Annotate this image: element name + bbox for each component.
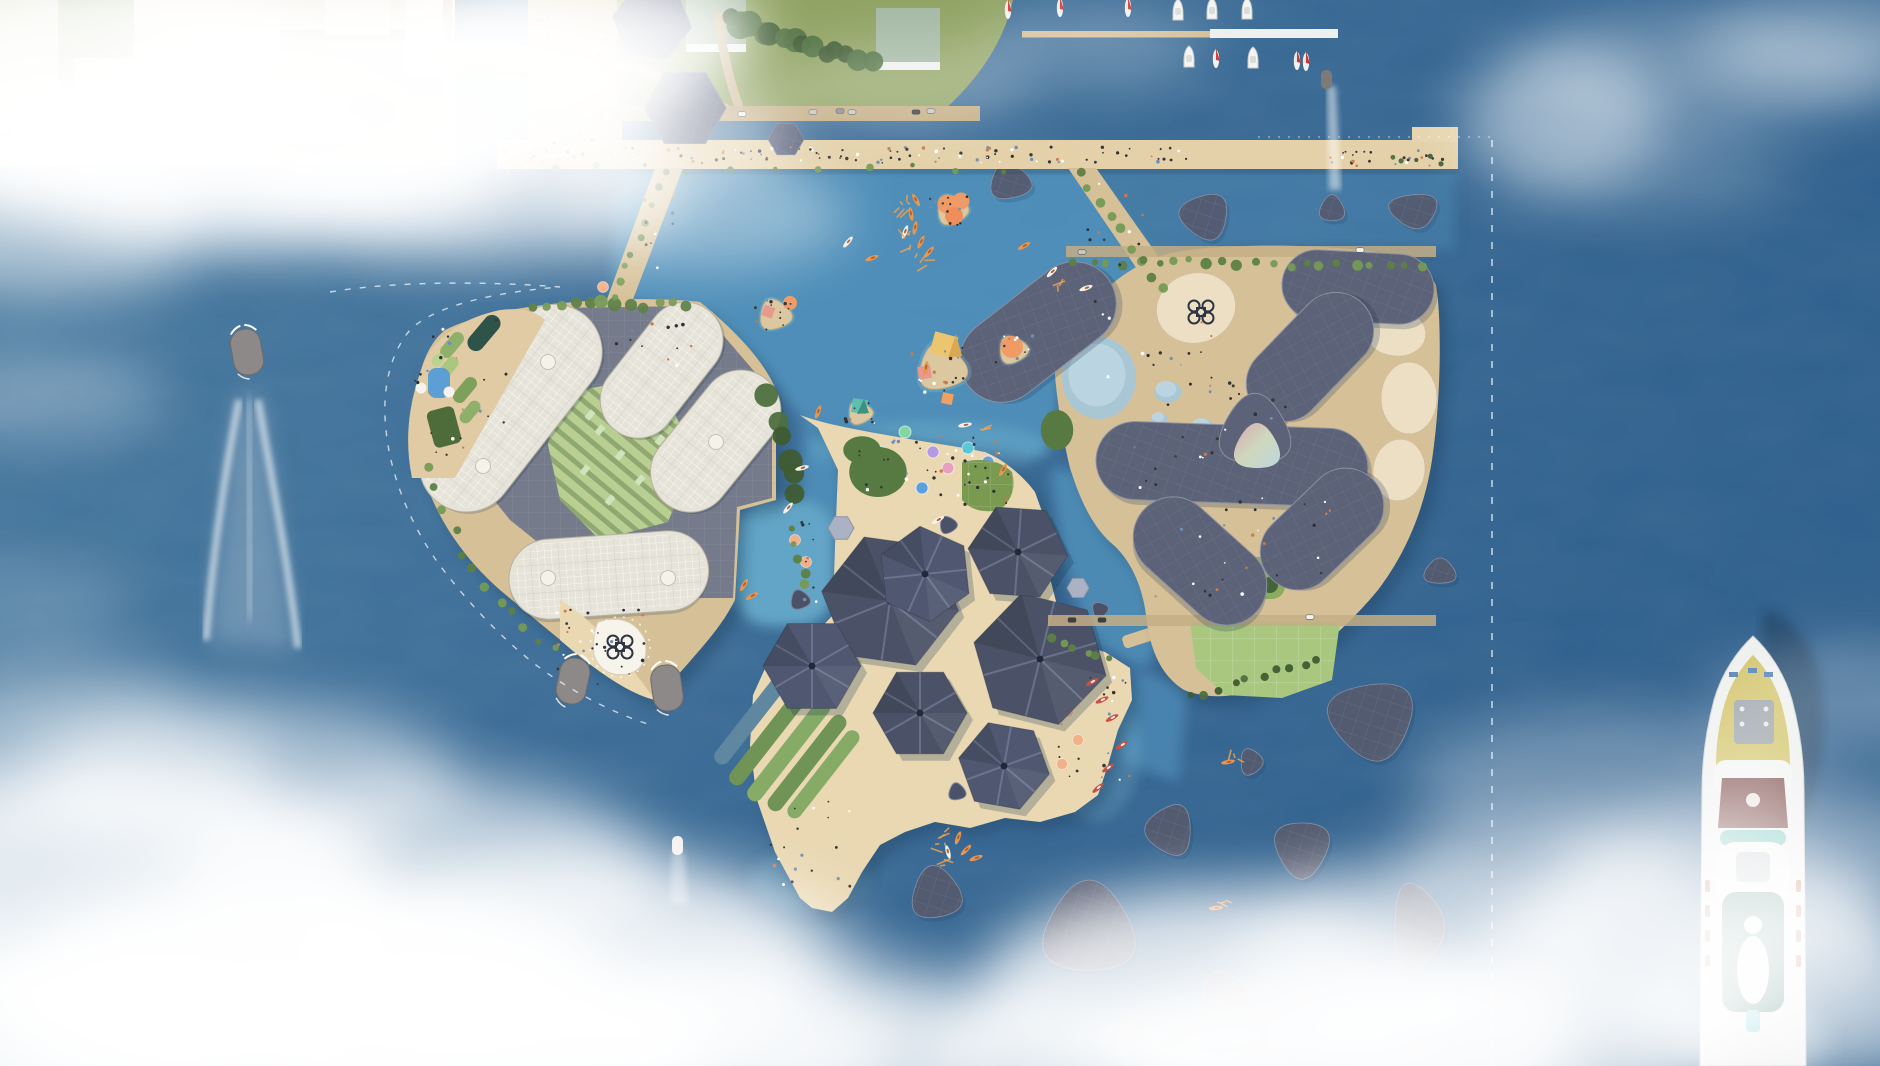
person-dot	[984, 467, 987, 470]
person-dot	[641, 614, 644, 617]
person-dot	[1125, 682, 1127, 684]
person-dot	[939, 435, 941, 437]
tree	[910, 163, 915, 168]
person-dot	[1058, 746, 1060, 748]
person-dot	[755, 320, 757, 322]
tree	[1127, 245, 1136, 254]
person-dot	[1167, 403, 1170, 406]
person-dot	[994, 149, 997, 152]
person-dot	[1240, 592, 1244, 596]
person-dot	[968, 481, 971, 484]
person-dot	[812, 586, 814, 588]
person-dot	[858, 450, 860, 452]
person-dot	[955, 449, 958, 452]
person-dot	[790, 146, 792, 148]
person-dot	[1103, 239, 1106, 242]
person-dot	[1086, 228, 1089, 231]
person-dot	[1270, 417, 1273, 420]
person-dot	[456, 357, 458, 359]
person-dot	[1228, 381, 1231, 384]
person-dot	[447, 335, 449, 337]
person-dot	[1159, 351, 1162, 354]
person-dot	[938, 157, 940, 159]
tree	[424, 463, 433, 472]
person-dot	[766, 299, 768, 301]
person-dot	[1169, 147, 1172, 150]
person-dot	[582, 650, 585, 653]
person-dot	[935, 161, 937, 163]
person-dot	[909, 154, 912, 157]
person-dot	[1128, 230, 1131, 233]
person-dot	[676, 347, 678, 349]
person-dot	[911, 352, 914, 355]
person-dot	[835, 846, 838, 849]
beach-umbrella	[962, 442, 974, 454]
tree	[542, 303, 550, 311]
person-dot	[803, 598, 807, 602]
tree	[952, 168, 958, 174]
person-dot	[805, 586, 807, 588]
vent-dome	[661, 571, 676, 586]
tree	[800, 579, 810, 589]
person-dot	[980, 162, 982, 164]
person-dot	[621, 666, 623, 668]
person-dot	[971, 437, 973, 439]
person-dot	[643, 642, 646, 645]
cloud	[530, 875, 870, 1005]
person-dot	[1014, 339, 1017, 342]
person-dot	[1189, 383, 1192, 386]
person-dot	[1370, 151, 1373, 154]
person-dot	[779, 311, 781, 313]
tree	[1200, 258, 1211, 269]
person-dot	[439, 356, 442, 359]
person-dot	[1329, 509, 1332, 512]
car	[1098, 618, 1106, 623]
tree	[638, 303, 649, 314]
person-dot	[1202, 457, 1204, 459]
person-dot	[1098, 183, 1100, 185]
greenhouse-frame	[511, 532, 708, 617]
person-dot	[1325, 513, 1328, 516]
dome-tent	[444, 387, 455, 398]
person-dot	[994, 153, 996, 155]
person-dot	[994, 441, 997, 444]
person-dot	[791, 880, 794, 883]
person-dot	[495, 319, 498, 322]
person-dot	[940, 469, 943, 472]
bush-cluster	[843, 436, 881, 464]
tree	[1332, 259, 1340, 267]
person-dot	[1119, 779, 1121, 781]
person-dot	[1201, 321, 1203, 323]
person-dot	[1036, 160, 1038, 162]
person-dot	[1417, 149, 1420, 152]
person-dot	[883, 459, 885, 461]
person-dot	[1061, 160, 1064, 163]
tree	[557, 301, 567, 311]
person-dot	[667, 358, 669, 360]
person-dot	[827, 817, 829, 819]
person-dot	[1116, 151, 1119, 154]
person-dot	[1151, 156, 1153, 158]
person-dot	[1007, 473, 1009, 475]
person-dot	[1124, 194, 1127, 197]
person-dot	[448, 342, 452, 346]
person-dot	[1272, 517, 1275, 520]
person-dot	[1254, 412, 1258, 416]
person-dot	[1086, 159, 1088, 161]
person-dot	[565, 622, 568, 625]
person-dot	[887, 147, 890, 150]
person-dot	[1137, 243, 1140, 246]
person-dot	[557, 668, 560, 671]
person-dot	[958, 155, 961, 158]
person-dot	[1028, 348, 1030, 350]
person-dot	[790, 303, 792, 305]
person-dot	[596, 643, 598, 645]
person-dot	[854, 407, 856, 409]
person-dot	[929, 198, 931, 200]
tree	[1188, 692, 1194, 698]
person-dot	[675, 324, 678, 327]
person-dot	[604, 650, 606, 652]
paddle-splash	[935, 844, 939, 845]
tree	[1387, 262, 1395, 270]
person-dot	[1317, 557, 1320, 560]
person-dot	[952, 381, 955, 384]
tree	[571, 297, 582, 308]
pier-notch	[1412, 127, 1458, 142]
tree	[1302, 661, 1310, 669]
tree	[430, 483, 438, 491]
person-dot	[1210, 335, 1212, 337]
tree	[1169, 257, 1177, 265]
person-dot	[919, 448, 921, 450]
person-dot	[483, 379, 485, 381]
person-dot	[876, 161, 879, 164]
person-dot	[856, 153, 859, 156]
person-dot	[868, 402, 870, 404]
person-dot	[1216, 437, 1219, 440]
person-dot	[1097, 231, 1100, 234]
person-dot	[949, 203, 951, 205]
person-dot	[1188, 352, 1191, 355]
person-dot	[949, 357, 952, 360]
person-dot	[641, 659, 645, 663]
person-dot	[918, 379, 920, 381]
person-dot	[591, 629, 594, 632]
person-dot	[628, 673, 630, 675]
person-dot	[880, 159, 882, 161]
person-dot	[1192, 583, 1195, 586]
person-dot	[1304, 503, 1306, 505]
person-dot	[1421, 156, 1424, 159]
tree	[1001, 170, 1006, 175]
tree	[1352, 260, 1363, 271]
person-dot	[986, 477, 989, 480]
tree	[467, 563, 476, 572]
person-dot	[844, 417, 847, 420]
person-dot	[966, 195, 969, 198]
person-dot	[1199, 456, 1202, 459]
person-dot	[906, 472, 908, 474]
car	[1068, 618, 1076, 623]
person-dot	[1224, 562, 1226, 564]
person-dot	[441, 328, 444, 331]
person-dot	[1232, 384, 1235, 387]
person-dot	[845, 157, 848, 160]
person-dot	[946, 453, 948, 455]
person-dot	[1156, 160, 1160, 164]
person-dot	[963, 459, 966, 462]
person-dot	[1108, 317, 1111, 320]
person-dot	[794, 868, 797, 871]
person-dot	[800, 854, 803, 857]
person-dot	[1208, 594, 1211, 597]
person-dot	[564, 610, 567, 613]
beach-umbrella	[1057, 759, 1068, 770]
dome-tent	[953, 193, 970, 210]
person-dot	[1441, 158, 1444, 161]
person-dot	[1182, 436, 1184, 438]
vent-dome	[541, 571, 556, 586]
tree	[529, 303, 538, 312]
person-dot	[615, 639, 617, 641]
person-dot	[959, 222, 961, 224]
person-dot	[880, 486, 882, 488]
tree	[815, 166, 822, 173]
person-dot	[428, 391, 430, 393]
person-dot	[815, 600, 818, 603]
vent-dome	[709, 435, 724, 450]
person-dot	[933, 371, 936, 374]
person-dot	[976, 158, 979, 161]
person-dot	[796, 828, 798, 830]
person-dot	[1363, 151, 1365, 153]
person-dot	[1155, 595, 1157, 597]
person-dot	[569, 609, 571, 611]
person-dot	[1320, 572, 1322, 574]
person-dot	[637, 609, 640, 612]
person-dot	[812, 807, 815, 810]
tree	[669, 298, 677, 306]
tree	[1077, 168, 1086, 177]
person-dot	[1158, 158, 1160, 160]
person-dot	[1211, 451, 1214, 454]
tree	[1108, 212, 1117, 221]
person-dot	[944, 350, 946, 352]
tree	[1069, 258, 1077, 266]
tree	[1102, 260, 1109, 267]
person-dot	[1407, 158, 1410, 161]
person-dot	[1001, 454, 1003, 456]
pond-highlight	[1156, 381, 1177, 397]
person-dot	[930, 206, 933, 209]
tree	[498, 598, 507, 607]
person-dot	[1395, 163, 1397, 165]
person-dot	[1276, 574, 1278, 576]
person-dot	[811, 870, 813, 872]
tree	[1401, 262, 1408, 269]
person-dot	[935, 471, 937, 473]
cloud	[1510, 130, 1790, 210]
person-dot	[819, 157, 821, 159]
tree	[1061, 640, 1069, 648]
person-dot	[435, 451, 437, 453]
person-dot	[871, 421, 874, 424]
person-dot	[811, 149, 813, 151]
tree	[1261, 673, 1269, 681]
person-dot	[882, 162, 884, 164]
person-dot	[896, 151, 898, 153]
person-dot	[1129, 148, 1131, 150]
person-dot	[943, 381, 946, 384]
person-dot	[445, 454, 447, 456]
person-dot	[1170, 357, 1173, 360]
person-dot	[770, 844, 773, 847]
person-dot	[1107, 752, 1109, 754]
tree	[617, 278, 625, 286]
person-dot	[443, 369, 445, 371]
tree	[625, 299, 637, 311]
canopy-hub	[1037, 656, 1044, 663]
person-dot	[1352, 154, 1354, 156]
person-dot	[479, 410, 482, 413]
person-dot	[1090, 677, 1092, 679]
tree	[789, 526, 795, 532]
person-dot	[610, 640, 613, 643]
person-dot	[865, 485, 867, 487]
person-dot	[1102, 313, 1104, 315]
bush-cluster	[1041, 410, 1074, 450]
person-dot	[1355, 151, 1357, 153]
tree	[1414, 158, 1418, 162]
tree	[1270, 260, 1277, 267]
person-dot	[918, 154, 920, 156]
dome-tent	[416, 383, 427, 394]
tree	[1047, 633, 1056, 642]
person-dot	[1251, 533, 1254, 536]
person-dot	[934, 200, 937, 203]
tree	[535, 639, 541, 645]
canopy-hub	[917, 710, 924, 717]
person-dot	[557, 643, 560, 646]
person-dot	[999, 161, 1001, 163]
beach-umbrella	[942, 462, 954, 474]
person-dot	[801, 523, 804, 526]
person-dot	[1121, 679, 1124, 682]
cloud	[970, 10, 1210, 80]
person-dot	[491, 332, 493, 334]
person-dot	[932, 476, 935, 479]
person-dot	[942, 202, 944, 204]
person-dot	[964, 484, 966, 486]
person-dot	[782, 324, 784, 326]
person-dot	[1112, 676, 1115, 679]
person-dot	[462, 409, 464, 411]
person-dot	[1216, 588, 1219, 591]
person-dot	[1185, 158, 1187, 160]
beach-umbrella	[899, 426, 911, 438]
person-dot	[809, 148, 812, 151]
person-dot	[806, 557, 809, 560]
person-dot	[898, 158, 901, 161]
person-dot	[866, 488, 869, 491]
person-dot	[963, 503, 966, 506]
person-dot	[1112, 691, 1115, 694]
beach-umbrella	[1073, 735, 1084, 746]
person-dot	[1088, 238, 1091, 241]
person-dot	[1003, 336, 1005, 338]
person-dot	[503, 421, 505, 423]
person-dot	[615, 342, 618, 345]
tree	[518, 623, 527, 632]
person-dot	[986, 157, 988, 159]
tree	[1233, 679, 1240, 686]
tree	[1106, 655, 1112, 661]
vent-dome	[541, 355, 556, 370]
tree	[1215, 687, 1223, 695]
person-dot	[893, 440, 895, 442]
marina-pier-white	[1210, 29, 1338, 38]
canopy-hub	[1001, 763, 1008, 770]
tree	[508, 608, 515, 615]
person-dot	[1128, 775, 1130, 777]
tree	[1096, 198, 1106, 208]
person-dot	[1222, 579, 1224, 581]
person-dot	[988, 147, 991, 150]
tree	[1418, 262, 1427, 271]
person-dot	[451, 437, 455, 441]
tree	[1199, 691, 1208, 700]
small-pavilion	[1067, 579, 1089, 598]
person-dot	[828, 156, 831, 159]
cloud	[550, 160, 850, 270]
person-dot	[650, 322, 653, 325]
person-dot	[995, 452, 998, 455]
person-dot	[777, 858, 780, 861]
person-dot	[505, 373, 508, 376]
tree	[1083, 184, 1091, 192]
person-dot	[1048, 160, 1051, 163]
person-dot	[1058, 161, 1060, 163]
person-dot	[1141, 214, 1144, 217]
person-dot	[1224, 429, 1226, 431]
person-dot	[967, 473, 970, 476]
person-dot	[1263, 542, 1266, 545]
person-dot	[568, 627, 570, 629]
person-dot	[1271, 398, 1275, 402]
person-dot	[1200, 351, 1202, 353]
person-dot	[992, 490, 995, 493]
person-dot	[1431, 157, 1434, 160]
person-dot	[1163, 158, 1166, 161]
person-dot	[1351, 160, 1354, 163]
tree	[612, 294, 618, 300]
tree	[1304, 260, 1311, 267]
person-dot	[1077, 758, 1079, 760]
person-dot	[1030, 158, 1033, 161]
person-dot	[952, 457, 954, 459]
person-dot	[874, 422, 876, 424]
person-dot	[818, 153, 820, 155]
tree	[754, 383, 778, 407]
tree	[1241, 675, 1248, 682]
person-dot	[1024, 351, 1026, 353]
person-dot	[1108, 713, 1111, 716]
tree	[1218, 257, 1226, 265]
